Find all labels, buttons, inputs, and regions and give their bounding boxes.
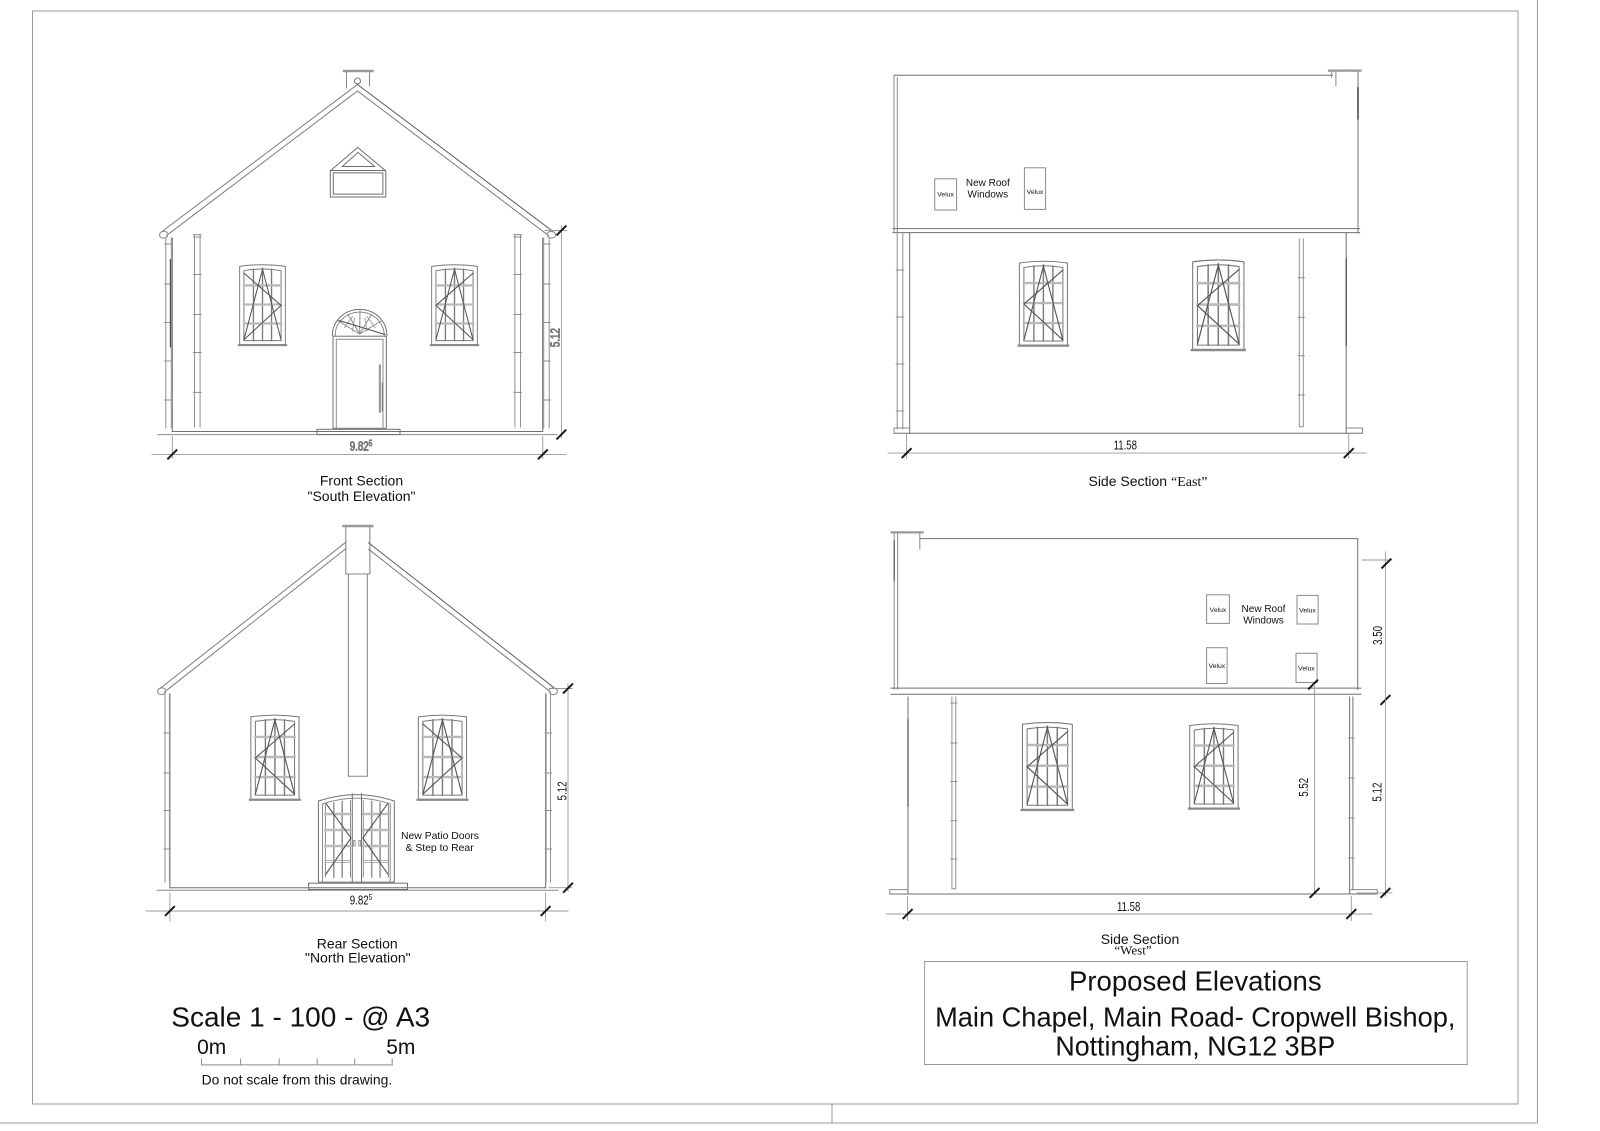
- svg-text:Front Section: Front Section: [320, 473, 403, 489]
- svg-text:"South Elevation": "South Elevation": [307, 488, 415, 504]
- svg-text:Velux: Velux: [1209, 663, 1226, 670]
- svg-text:5.52: 5.52: [1298, 778, 1312, 797]
- svg-text:5.12: 5.12: [556, 782, 570, 801]
- svg-text:Velux: Velux: [1298, 666, 1315, 673]
- svg-text:3.50: 3.50: [1372, 626, 1386, 645]
- svg-text:Scale 1 - 100 - @ A3: Scale 1 - 100 - @ A3: [171, 1001, 430, 1032]
- svg-text:Velux: Velux: [1027, 189, 1044, 196]
- svg-text:5.12: 5.12: [1371, 783, 1385, 802]
- svg-text:Main Chapel, Main Road- Cropwe: Main Chapel, Main Road- Cropwell Bishop,: [935, 1002, 1455, 1033]
- svg-text:“West”: “West”: [1114, 943, 1151, 958]
- svg-text:New Roof: New Roof: [1242, 604, 1286, 615]
- svg-text:Nottingham, NG12 3BP: Nottingham, NG12 3BP: [1055, 1031, 1335, 1062]
- svg-text:"North Elevation": "North Elevation": [305, 949, 411, 965]
- svg-text:New Patio Doors: New Patio Doors: [401, 831, 479, 842]
- svg-text:Velux: Velux: [1210, 607, 1227, 614]
- svg-text:New Roof: New Roof: [966, 178, 1010, 189]
- svg-text:Windows: Windows: [1243, 616, 1284, 627]
- svg-text:5m: 5m: [386, 1036, 415, 1059]
- svg-text:11.58: 11.58: [1114, 439, 1137, 453]
- svg-text:Velux: Velux: [937, 191, 954, 198]
- svg-text:Velux: Velux: [1299, 608, 1316, 615]
- svg-text:11.58: 11.58: [1117, 901, 1140, 915]
- svg-text:Do not scale from this drawing: Do not scale from this drawing.: [202, 1072, 393, 1088]
- svg-text:Windows: Windows: [968, 189, 1009, 200]
- svg-text:Side Section “East”: Side Section “East”: [1088, 473, 1207, 490]
- svg-text:5.12: 5.12: [550, 328, 564, 347]
- svg-text:& Step to Rear: & Step to Rear: [406, 843, 475, 854]
- svg-text:Proposed Elevations: Proposed Elevations: [1069, 966, 1322, 997]
- svg-text:0m: 0m: [197, 1036, 226, 1059]
